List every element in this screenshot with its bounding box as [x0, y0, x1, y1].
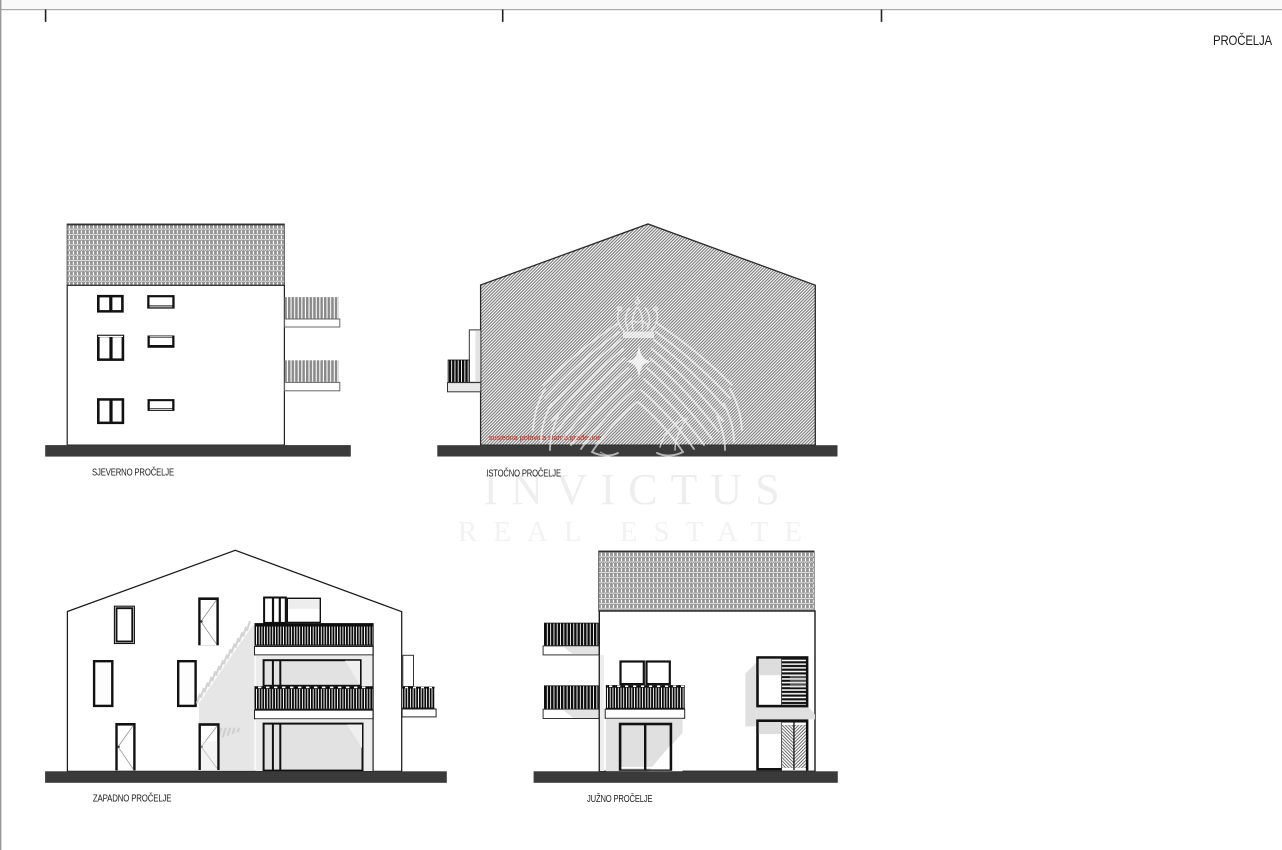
svg-text:SJEVERNO PROČELJE: SJEVERNO PROČELJE: [92, 466, 174, 479]
svg-text:ISTOČNO PROČELJE: ISTOČNO PROČELJE: [486, 466, 561, 479]
svg-text:ZAPADNO PROČELJE: ZAPADNO PROČELJE: [93, 792, 172, 805]
svg-text:REAL ESTATE: REAL ESTATE: [458, 516, 818, 548]
svg-text:JUŽNO PROČELJE: JUŽNO PROČELJE: [587, 792, 653, 805]
svg-text:susjedna polovica stamb.građev: susjedna polovica stamb.građevine: [489, 433, 601, 442]
svg-text:PROČELJA: PROČELJA: [1213, 32, 1273, 48]
